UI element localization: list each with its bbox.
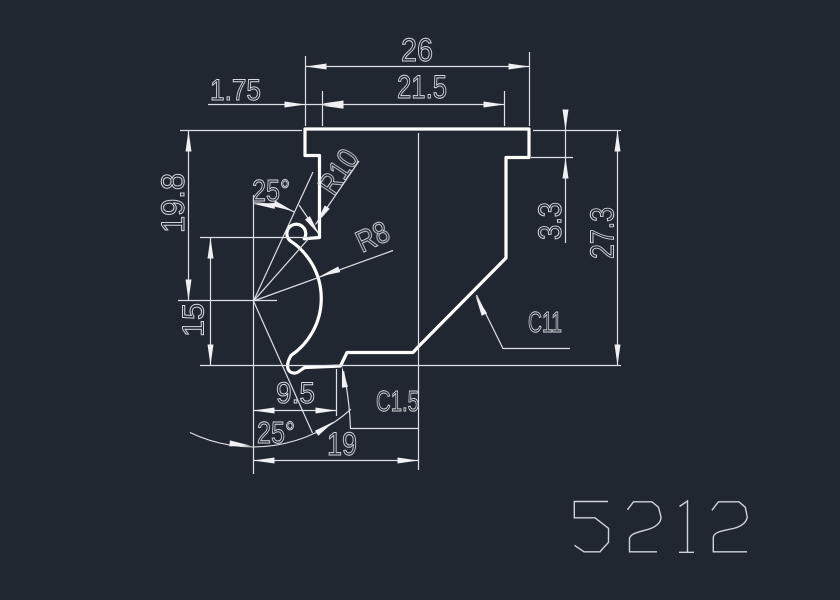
svg-text:21.5: 21.5 (397, 69, 447, 105)
svg-text:C1.5: C1.5 (376, 386, 419, 418)
svg-text:15: 15 (176, 303, 211, 337)
svg-text:19: 19 (327, 426, 357, 462)
svg-text:27.3: 27.3 (584, 207, 621, 259)
svg-text:3.3: 3.3 (532, 202, 568, 240)
svg-text:26: 26 (401, 32, 433, 68)
svg-text:25°: 25° (252, 173, 290, 208)
svg-text:C11: C11 (528, 307, 562, 339)
svg-text:1.75: 1.75 (210, 74, 261, 107)
svg-text:19.8: 19.8 (155, 173, 191, 233)
svg-text:25°: 25° (257, 415, 295, 450)
